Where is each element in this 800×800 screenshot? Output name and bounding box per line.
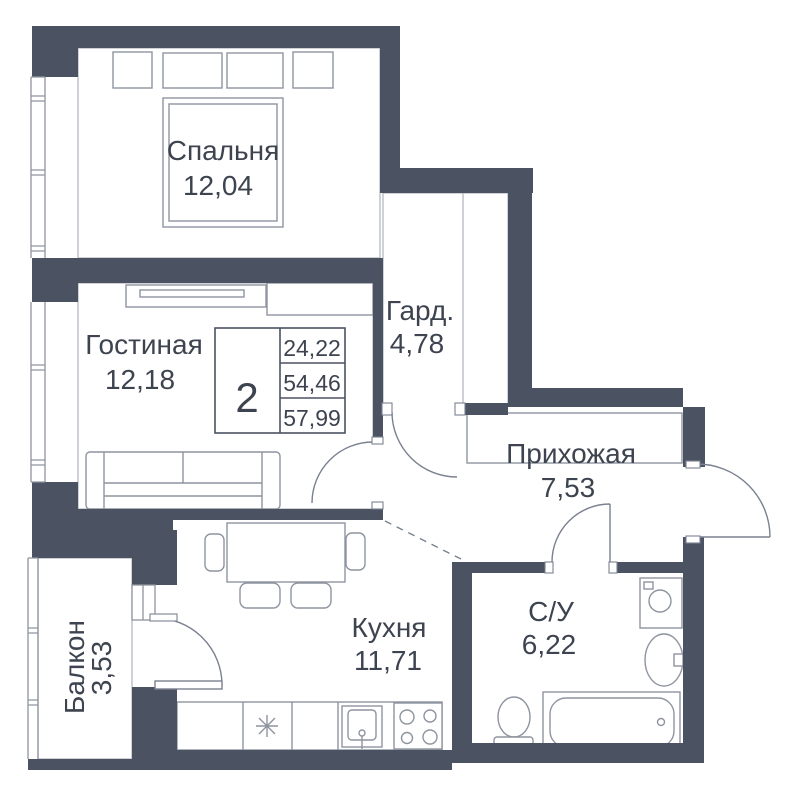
balcony-mullions: [28, 628, 38, 705]
bathroom-label: С/У: [528, 596, 574, 627]
living-label: Гостиная: [85, 329, 203, 360]
nightstand-right: [293, 52, 333, 88]
chair-bottom-2: [291, 583, 331, 608]
wall-bathroom-top-right: [610, 562, 683, 573]
wardrobe-area: 4,78: [390, 328, 445, 359]
window-band-living: [31, 302, 45, 482]
wardrobe-label: Гард.: [386, 295, 454, 326]
jamb-wardrobe-left: [382, 403, 392, 415]
hallway-area: 7,53: [541, 472, 596, 503]
pillow-right: [227, 53, 283, 88]
jamb-entrance-bottom: [686, 536, 700, 543]
toilet-bowl: [498, 697, 530, 737]
chair-left: [205, 534, 224, 571]
balcony-door-leaf: [155, 681, 222, 689]
wall-bedroom-right: [380, 26, 400, 168]
wall-living-kitchen-thick: [78, 509, 173, 558]
jamb-bathroom-left: [545, 562, 553, 573]
chair-right: [346, 533, 365, 570]
hallway-label: Прихожая: [506, 438, 636, 469]
jamb-bathroom-right: [609, 562, 617, 573]
wall-bedroom-living-left-block: [32, 258, 78, 302]
washing-machine: [640, 578, 682, 628]
wall-top-left-block: [32, 26, 78, 77]
floor-plan-canvas: 2 24,22 54,46 57,99 Спальня 12,04 Гостин…: [0, 0, 800, 800]
tv: [140, 290, 244, 297]
stat-area-2: 54,46: [283, 370, 341, 396]
stat-rooms-count: 2: [235, 374, 258, 421]
bedroom-area: 12,04: [183, 170, 253, 201]
bathroom-sink-faucet: [674, 654, 683, 666]
stat-area-3: 57,99: [283, 405, 341, 431]
jamb-entrance-top: [686, 461, 700, 468]
kitchen-area: 11,71: [354, 645, 422, 676]
dining-table: [227, 523, 345, 582]
wall-bedroom-living: [32, 258, 383, 283]
balcony-door-arc: [155, 618, 222, 685]
wall-wardrobe-right: [508, 193, 532, 407]
stat-area-1: 24,22: [283, 335, 341, 361]
wall-balcony-bottom: [28, 759, 132, 770]
jamb-balcony-door: [150, 614, 177, 621]
wardrobe-door-arc: [392, 412, 457, 477]
bedroom-label: Спальня: [167, 135, 280, 166]
wall-left-lower-block: [32, 482, 78, 558]
living-room-door-arc: [312, 442, 373, 503]
kitchen-label: Кухня: [352, 612, 427, 643]
wall-living-kitchen: [173, 509, 383, 520]
bathroom-area: 6,22: [522, 629, 577, 660]
balcony-area: 3,53: [86, 641, 117, 696]
wall-bathroom-bottom: [452, 743, 704, 763]
wall-wardrobe-bottom-stub: [465, 403, 508, 415]
chair-bottom-1: [240, 583, 280, 608]
dishwasher-asterisk-icon: [256, 715, 278, 737]
wall-wardrobe-top: [380, 168, 533, 193]
window-band-bedroom: [31, 77, 45, 258]
wall-top: [32, 26, 400, 48]
kitchen-hallway-boundary-dashed: [385, 521, 463, 560]
wall-bathroom-top-left: [472, 562, 552, 573]
wall-kitchen-bottom: [132, 750, 452, 770]
wall-right-lower: [683, 537, 704, 763]
floor-plan: 2 24,22 54,46 57,99 Спальня 12,04 Гостин…: [0, 0, 800, 800]
jamb-living-bottom: [372, 502, 383, 509]
jamb-living-top: [372, 437, 383, 444]
wall-kitchen-bathroom: [452, 562, 472, 763]
jamb-wardrobe-right: [455, 403, 465, 415]
wall-balcony-kitchen-lower: [132, 687, 177, 770]
entrance-door-arc: [697, 464, 770, 537]
nightstand-left: [113, 52, 152, 88]
window-band-balcony: [28, 558, 38, 759]
kitchen-sink-faucet: [359, 730, 365, 736]
wall-hallway-right-upper: [683, 407, 705, 467]
stats-box: 2 24,22 54,46 57,99: [215, 328, 345, 433]
pillow-left: [163, 53, 222, 88]
living-area: 12,18: [105, 364, 175, 395]
wall-hallway-top: [532, 388, 683, 407]
bathroom-door-arc: [552, 504, 610, 562]
shelf-unit: [267, 283, 373, 315]
